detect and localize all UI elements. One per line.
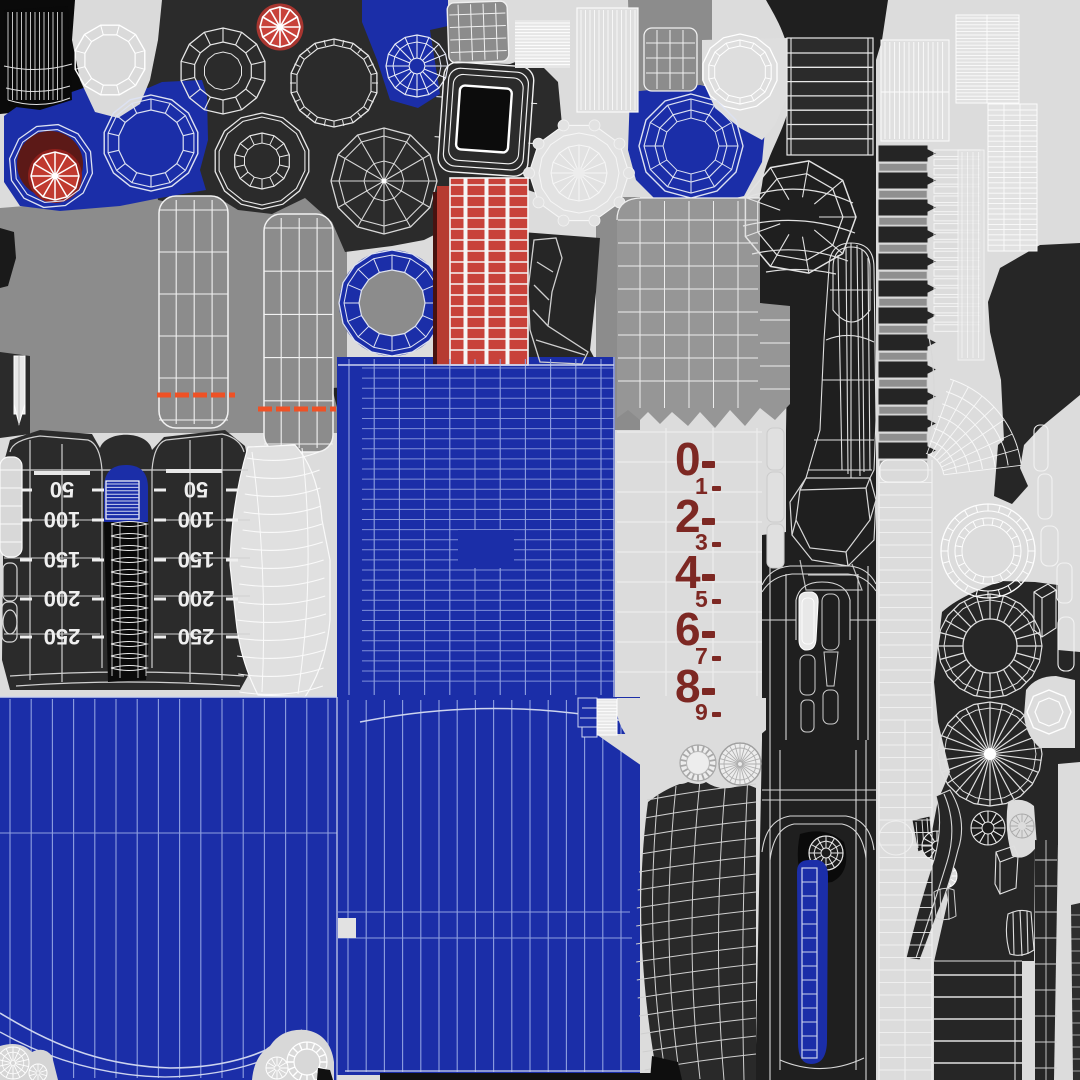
svg-text:5: 5 bbox=[695, 586, 708, 612]
svg-text:200: 200 bbox=[178, 586, 215, 611]
svg-text:200: 200 bbox=[44, 586, 81, 611]
svg-text:250: 250 bbox=[178, 624, 215, 649]
svg-text:9: 9 bbox=[695, 699, 708, 725]
svg-text:1: 1 bbox=[695, 473, 708, 499]
svg-text:50: 50 bbox=[184, 477, 208, 502]
svg-text:100: 100 bbox=[178, 507, 215, 532]
svg-text:7: 7 bbox=[695, 643, 708, 669]
svg-text:150: 150 bbox=[44, 547, 81, 572]
svg-text:250: 250 bbox=[44, 624, 81, 649]
svg-text:150: 150 bbox=[178, 547, 215, 572]
svg-text:50: 50 bbox=[50, 477, 74, 502]
svg-text:100: 100 bbox=[44, 507, 81, 532]
svg-text:3: 3 bbox=[695, 529, 708, 555]
